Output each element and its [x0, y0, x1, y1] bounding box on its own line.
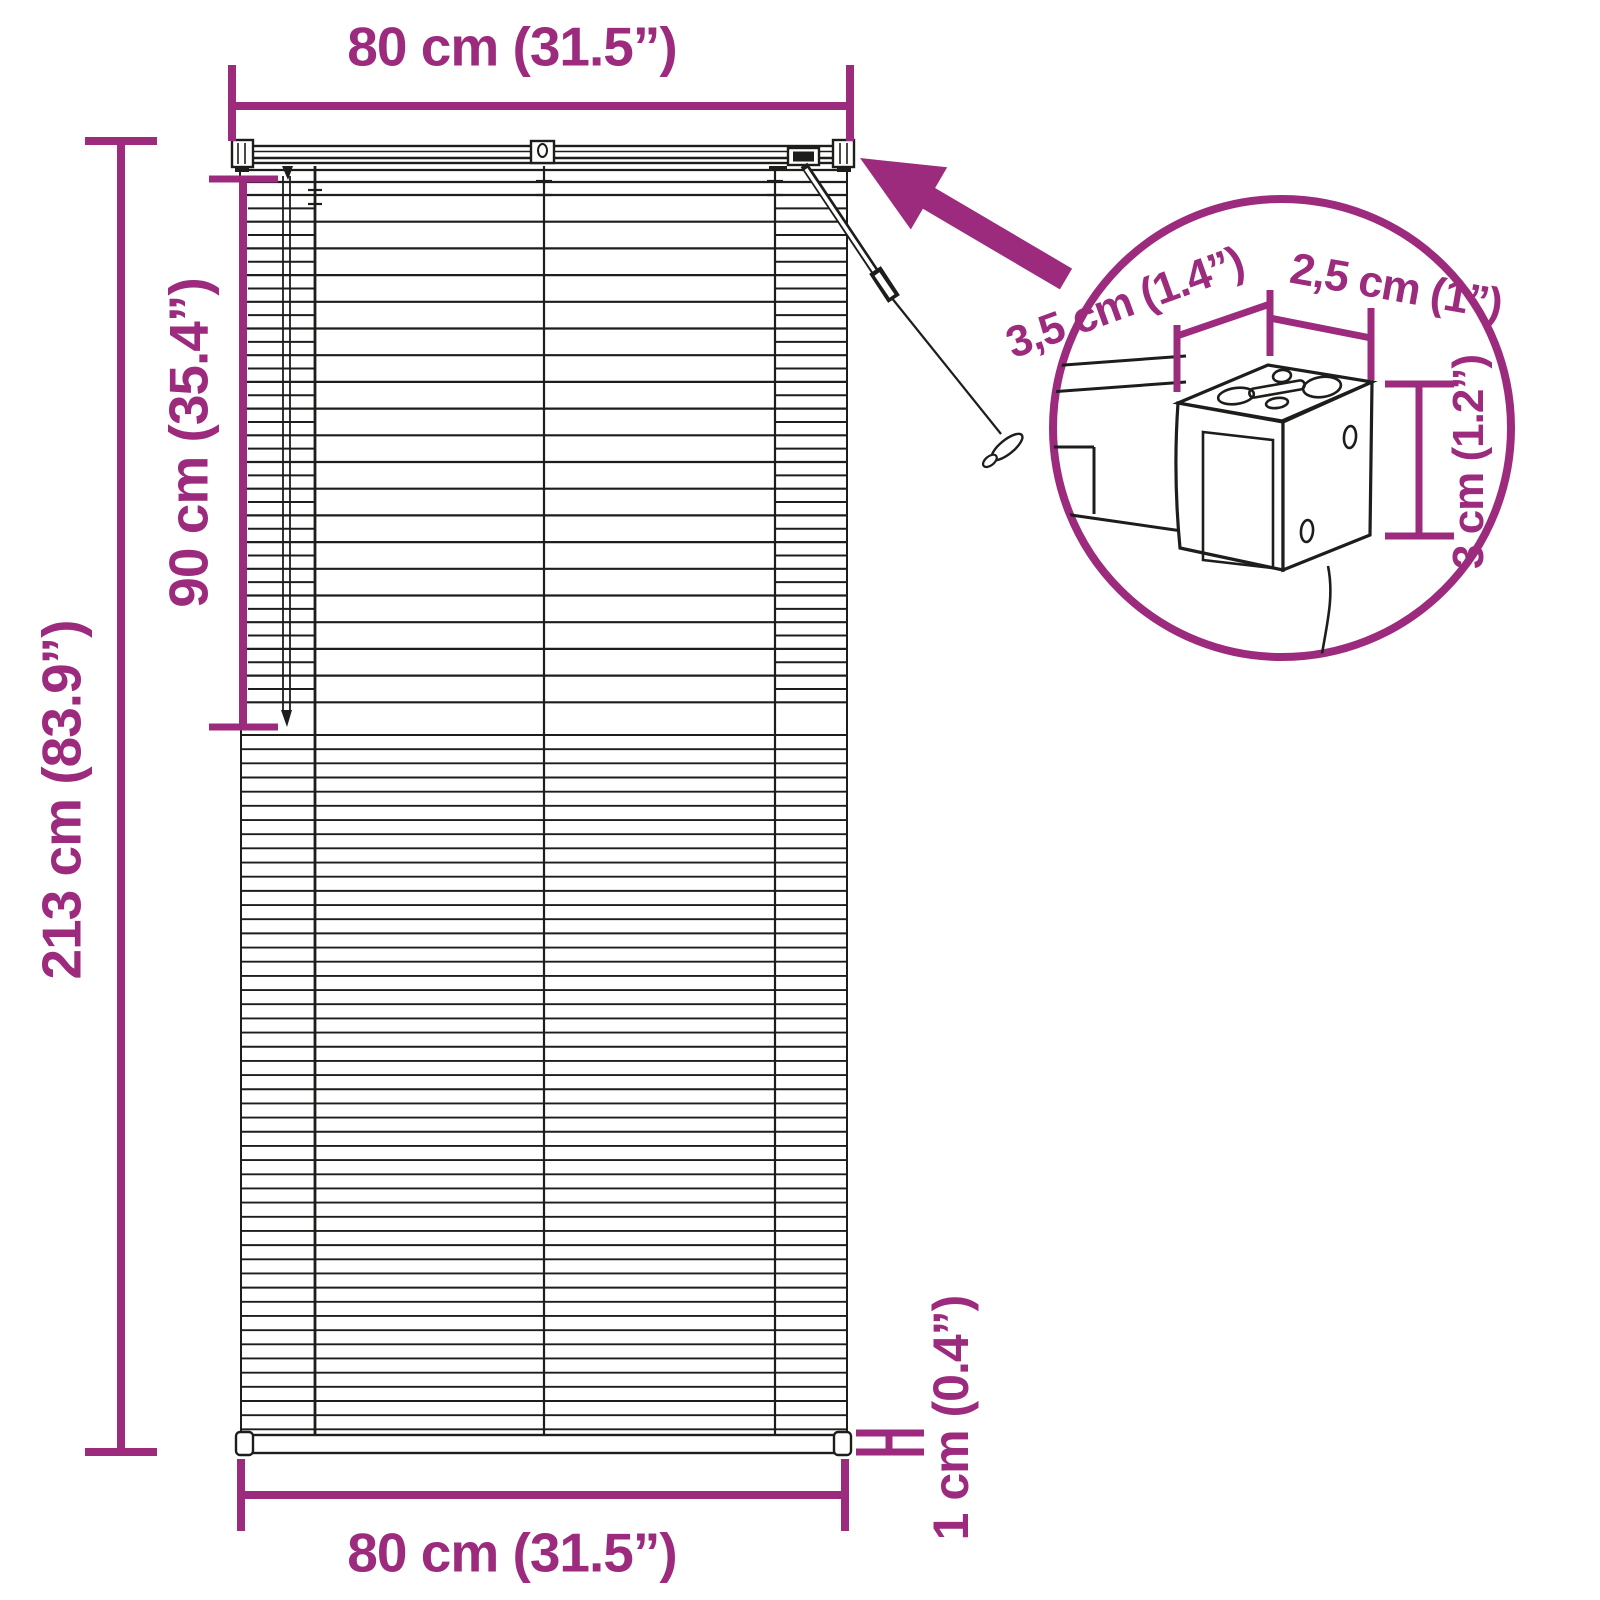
- bottom-rail: [236, 1432, 851, 1455]
- total-height-dimension: [85, 141, 157, 1452]
- dim-label-upper-height: 90 cm (35.4”): [162, 278, 217, 607]
- dim-label-total-height: 213 cm (83.9”): [35, 621, 90, 980]
- blind-dimension-diagram: 80 cm (31.5”) 213 cm (83.9”) 90 cm (35.4…: [0, 0, 1600, 1600]
- callout-arrow-icon: [860, 158, 1072, 289]
- bottom-rail-thickness-bracket: [856, 1433, 924, 1452]
- dim-label-inset-height: 3 cm (1.2”): [1447, 355, 1491, 569]
- dim-label-top-width: 80 cm (31.5”): [347, 20, 676, 75]
- lift-cord: [281, 152, 293, 727]
- bottom-width-dimension: [241, 1459, 845, 1531]
- dim-label-bottom-rail-thickness: 1 cm (0.4”): [926, 1296, 976, 1541]
- diagram-drawing: [0, 0, 1600, 1600]
- dim-label-bottom-width: 80 cm (31.5”): [347, 1526, 676, 1581]
- bracket-3d-drawing: [1050, 356, 1372, 730]
